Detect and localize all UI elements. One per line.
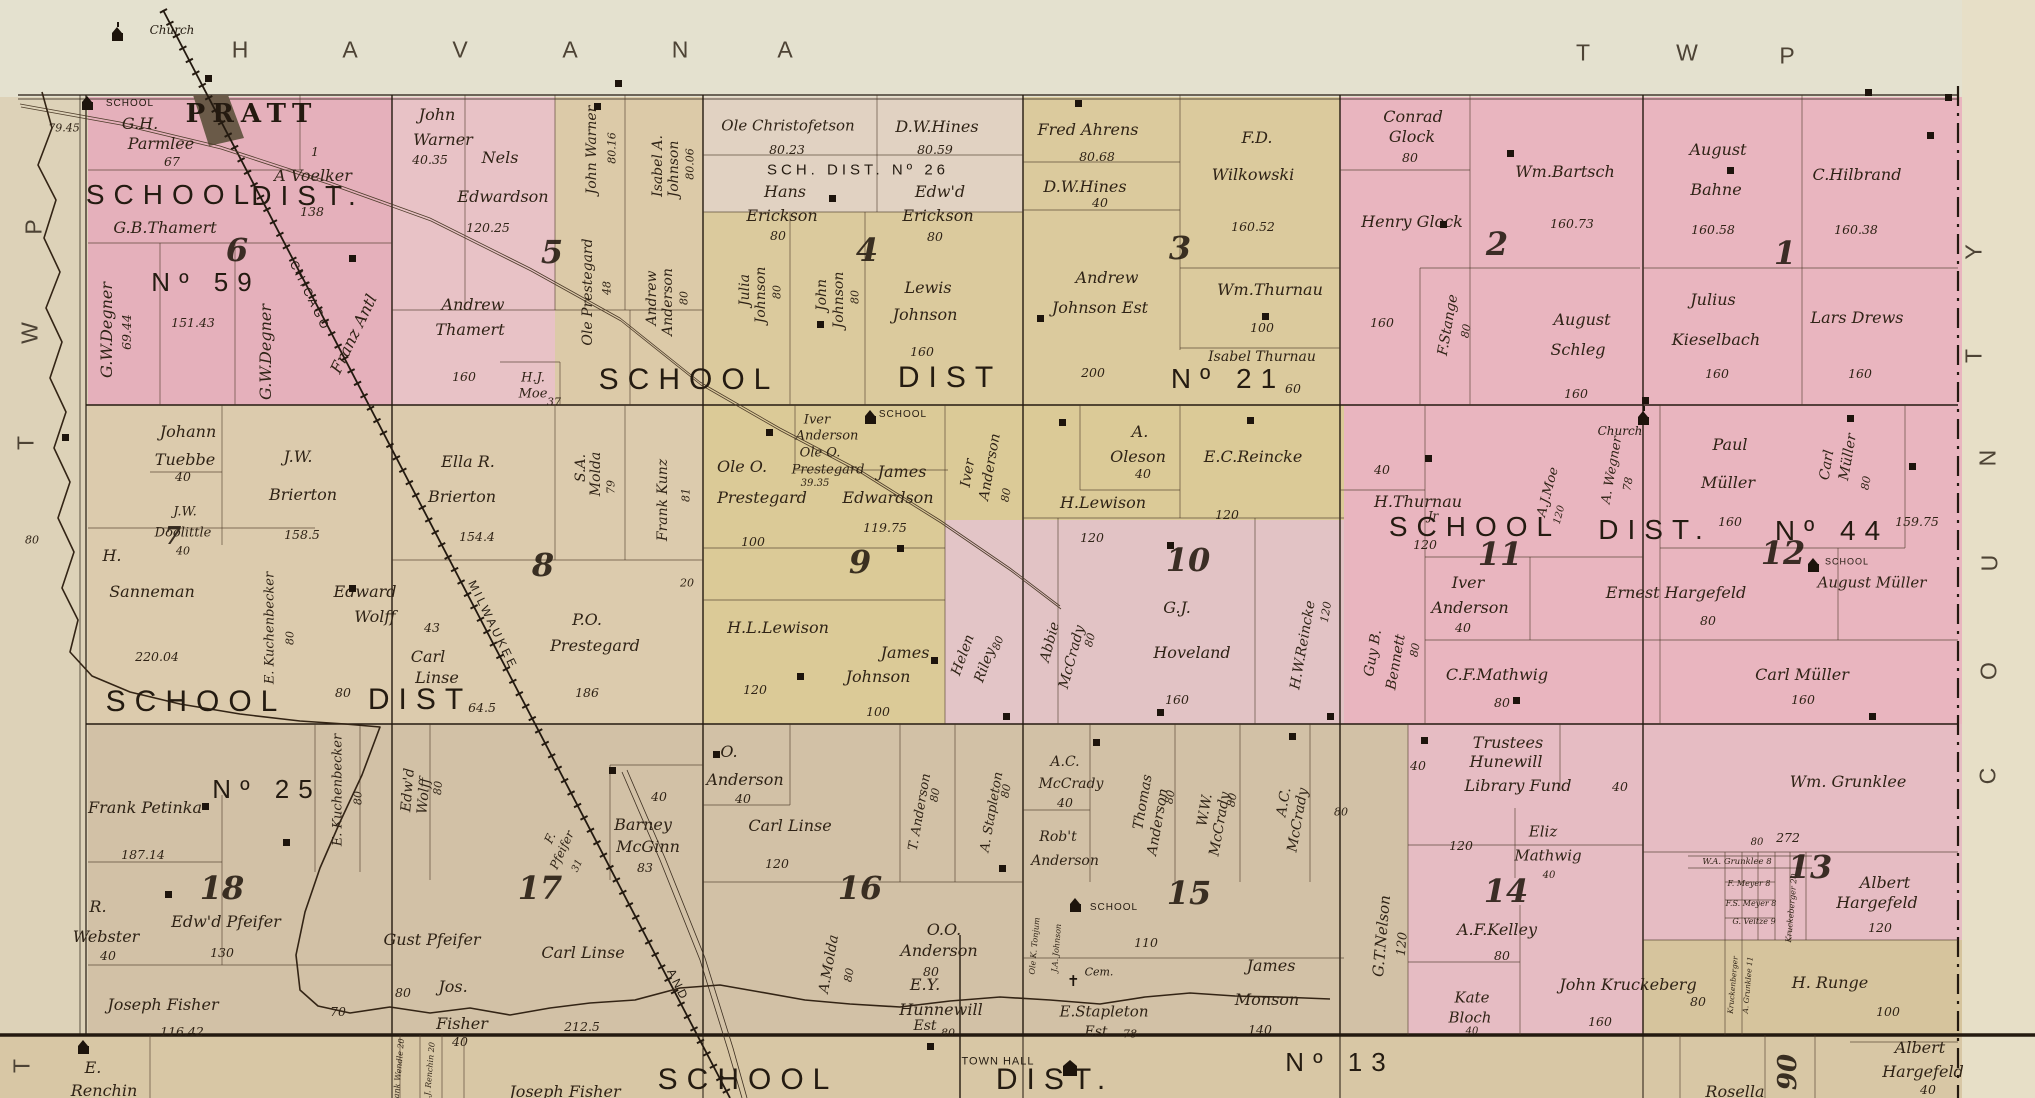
owner-label: Andrew [645,270,659,325]
owner-label: A. [1132,424,1149,440]
owner-label: E.Y. [910,977,940,993]
acreage-label: 160 [910,346,934,359]
acreage-label: 138 [300,206,324,219]
owner-label: Bloch [1449,1011,1492,1026]
owner-label: Johnson [832,272,846,329]
house-icon [1847,415,1854,422]
border-letter: T [11,1059,34,1073]
owner-label: Müller [1701,475,1755,491]
owner-label: Ole K. Tonjum [1029,917,1042,975]
section-number: 18 [200,872,245,904]
acreage-label: 80 [1402,152,1418,165]
acreage-label: 80 [1163,789,1176,805]
acreage-label: 80.06 [685,148,696,180]
owner-label: Moe [519,388,548,401]
owner-label: S.A. [574,454,588,482]
acreage-label: 151.43 [171,317,215,330]
acreage-label: 80 [1334,807,1348,818]
house-icon [349,585,356,592]
section-number: 2 [1486,228,1508,260]
owner-label: Hargefeld [1836,895,1918,911]
section-number: 16 [838,872,883,904]
district-label: Nº 25 [212,776,321,802]
plat-map: HAVANATWPPWTTYTNUOCPRATTChurchSCHOOLSCHO… [0,0,2035,1098]
owner-label: Wm. Grunklee [1790,774,1907,790]
school-icon [78,1040,89,1054]
school-icon [82,96,93,110]
acreage-label: 120 [1553,504,1568,525]
border-letter: O [1978,662,2001,680]
owner-label: Andrew [442,297,505,313]
house-icon [1727,167,1734,174]
owner-label: Rob't [1039,830,1076,844]
acreage-label: 160 [1718,516,1742,529]
acreage-label: 154.4 [459,531,495,544]
owner-label: Ella R. [441,454,495,470]
acreage-label: 80 [679,291,690,305]
acreage-label: 160 [1848,368,1872,381]
owner-label: Guy B. [1362,628,1384,677]
owner-label: McGinn [616,839,680,855]
acreage-label: 40 [651,791,667,804]
owner-label: Monson [1235,992,1299,1008]
acreage-label: 159.75 [1895,516,1939,529]
house-icon [1247,417,1254,424]
house-icon [62,434,69,441]
owner-label: Iver [804,414,830,427]
house-icon [1059,419,1066,426]
house-icon [1425,455,1432,462]
owner-label: Johann [160,424,217,440]
section-number: 3 [1169,232,1191,264]
owner-label: O. [720,744,737,760]
acreage-label: 40 [100,950,116,963]
owner-label: Hans [764,184,806,200]
owner-label: Nels [482,150,519,166]
owner-label: Ole O. [800,447,841,460]
acreage-label: 80 [927,231,943,244]
owner-label: Iver [959,458,978,488]
owner-label: E. Kuchenbecker [264,572,277,684]
owner-label: Johnson Est [1052,300,1148,316]
house-icon [615,80,622,87]
owner-label: Frank Kunz [656,459,670,541]
section-number: 15 [1167,877,1212,909]
border-letter: W [19,322,42,344]
acreage-label: 40 [1612,781,1628,794]
acreage-label: 37 [547,397,561,408]
owner-label: Library Fund [1465,778,1572,794]
owner-label: James [1247,958,1296,974]
acreage-label: 120 [1395,932,1410,957]
owner-label: E.C.Reincke [1204,449,1303,465]
acreage-label: 80 [999,783,1012,799]
owner-label: Joseph Fisher [107,997,218,1013]
acreage-label: 200 [1081,367,1105,380]
owner-label: Kruckenberger [1727,956,1739,1014]
acreage-label: 78 [1621,476,1634,492]
owner-label: Bennett [1384,633,1408,691]
owner-label: D.W.Hines [895,119,978,135]
owner-label: Anderson [1031,854,1099,868]
house-icon [1507,150,1514,157]
owner-label: Andrew [1076,270,1139,286]
owner-label: Doolittle [155,527,212,540]
owner-label: Fred Ahrens [1037,122,1138,138]
owner-label: Julia [738,274,752,306]
acreage-label: 80 [432,781,444,796]
owner-label: A.C. [1050,755,1079,769]
owner-label: J.W. [284,449,313,465]
landmark-label: TOWN HALL [962,1057,1035,1068]
acreage-label: 160 [1791,694,1815,707]
owner-label: Ole Prestegard [581,238,595,345]
owner-label: Gust Pfeifer [383,932,480,948]
acreage-label: 81 [681,488,692,502]
acreage-label: 40 [1057,797,1073,810]
owner-label: O.O. [927,922,962,938]
house-icon [1262,313,1269,320]
owner-label: Iver [1452,575,1484,591]
house-icon [609,767,616,774]
owner-label: John [815,279,829,311]
acreage-label: 120 [765,858,789,871]
acreage-label: 80.23 [769,144,805,157]
border-letter: P [23,219,46,234]
acreage-label: 31 [571,858,585,874]
owner-label: Jos. [438,979,467,995]
border-letter: Y [1963,244,1986,259]
acreage-label: 40 [1092,197,1108,210]
owner-label: Lars Drews [1811,310,1904,326]
owner-label: R. [89,899,106,915]
owner-label: Rosella [1705,1084,1764,1098]
acreage-label: 48 [602,281,613,295]
owner-label: H.Thurnau [1374,494,1462,510]
border-letter: T [1576,42,1590,65]
owner-label: H.J. [521,372,545,385]
house-icon [283,839,290,846]
landmark-label: Cem. [1085,967,1114,978]
house-icon [1167,542,1174,549]
owner-label: F. Meyer 8 [1727,880,1770,888]
acreage-label: 40.35 [412,154,448,167]
acreage-label: 158.5 [284,529,320,542]
acreage-label: 67 [164,156,180,169]
landmark-label: SCHOOL [879,410,927,420]
owner-label: Renchin [71,1083,138,1098]
acreage-label: 160 [1588,1016,1612,1029]
acreage-label: 120.25 [466,222,510,235]
owner-label: C.F.Mathwig [1446,667,1548,683]
section-number: 14 [1484,875,1529,907]
owner-label: Linse [415,670,459,686]
acreage-label: 160.73 [1550,218,1594,231]
owner-label: Wm.Thurnau [1217,282,1323,298]
owner-label: Molda [589,452,603,497]
acreage-label: 79 [606,480,617,494]
owner-label: H. [102,548,121,564]
acreage-label: 40 [1466,1027,1479,1037]
owner-label: Anderson [1431,600,1508,616]
acreage-label: 64.5 [468,702,496,715]
owner-label: Anderson [661,268,675,336]
section-number: 6 [226,234,248,266]
acreage-label: 80 [772,285,783,299]
owner-label: Johnson [667,141,681,198]
railroad-label: AND [665,967,691,1003]
house-icon [817,321,824,328]
border-letter: N [1977,450,2000,467]
border-letter: H [232,39,249,62]
section-number: 4 [856,234,878,266]
district-label: SCHOOL [86,181,258,209]
section-number: 1 [1774,237,1796,269]
house-icon [1927,132,1934,139]
owner-label: Prestegard [717,490,807,506]
border-letter: A [562,39,577,62]
house-icon [349,255,356,262]
owner-label: Est [1084,1025,1107,1039]
owner-label: Joseph Fisher [509,1084,620,1098]
landmark-label: Church [150,24,195,36]
owner-label: A. Grunklee 11 [1742,956,1754,1014]
townhall-icon [1063,1060,1077,1076]
owner-label: Anderson [900,943,977,959]
district-label: SCHOOL [658,1065,839,1095]
acreage-label: 100 [866,706,890,719]
owner-label: Tuebbe [155,452,215,468]
acreage-label: 80.59 [917,144,953,157]
acreage-label: 80 [335,687,351,700]
acreage-label: 40 [1374,464,1390,477]
house-icon [1421,737,1428,744]
owner-label: G.W.Degner [99,282,115,378]
acreage-label: 80 [1225,792,1238,808]
owner-label: Johnson [754,267,768,324]
house-icon [1003,713,1010,720]
owner-label: Ole Christofetson [721,119,854,134]
owner-label: Henry Glock [1361,214,1463,230]
acreage-label: 119.75 [863,522,907,535]
acreage-label: 40 [452,1036,468,1049]
acreage-label: 80 [1751,838,1764,848]
house-icon [1327,713,1334,720]
owner-label: Carl Linse [541,945,624,961]
acreage-label: 212.5 [564,1021,600,1034]
landmark-label: SCHOOL [106,99,154,109]
house-icon [797,673,804,680]
house-icon [713,751,720,758]
owner-label: Anderson [706,772,783,788]
district-label: SCH. DIST. Nº 26 [767,163,949,178]
acreage-label: 80 [1690,996,1706,1009]
owner-label: John [419,107,456,123]
house-icon [829,195,836,202]
section-number: 90 [1775,1054,1801,1090]
owner-label: A. Wegner [1600,435,1625,504]
owner-label: Hunnewill [899,1002,982,1018]
acreage-label: 186 [575,687,599,700]
owner-label: J.A. Johnson [1051,924,1063,973]
owner-label: P.O. [572,612,602,628]
acreage-label: 70 [330,1006,346,1019]
acreage-label: 160.38 [1834,224,1878,237]
acreage-label: 110 [1134,937,1158,950]
border-letter: U [1979,555,2002,572]
acreage-label: 160 [1564,388,1588,401]
owner-label: A Voelker [274,168,352,184]
owner-label: Carl [1817,449,1836,481]
acreage-label: 80.16 [607,132,618,164]
owner-label: Barney [614,817,672,833]
section-number: 8 [532,549,554,581]
owner-label: G.W.Degner [258,304,274,400]
acreage-label: 116.42 [160,1026,204,1039]
acreage-label: 100 [1876,1006,1900,1019]
house-icon [1513,697,1520,704]
border-letter: T [1963,349,1986,363]
house-icon [1440,221,1447,228]
acreage-label: 40 [1135,468,1151,481]
district-label: Nº 13 [1285,1049,1394,1075]
owner-label: H. Runge [1792,975,1869,991]
owner-label: Brierton [269,487,337,503]
house-icon [1289,733,1296,740]
owner-label: Carl Müller [1755,667,1849,683]
acreage-label: 78 [1123,1029,1137,1040]
house-icon [594,103,601,110]
acreage-label: 120 [1319,601,1333,624]
owner-label: Jr [1428,510,1439,522]
section-number: 17 [518,872,563,904]
school-icon [1070,898,1081,912]
acreage-label: 160 [1370,317,1394,330]
town-label: PRATT [186,101,319,127]
owner-label: August Müller [1818,576,1927,591]
owner-label: Parmlee [128,136,194,152]
acreage-label: 80 [1700,615,1716,628]
owner-label: F. [542,831,557,845]
owner-label: Wolff [415,777,432,814]
acreage-label: 80 [941,1028,955,1039]
owner-label: J.W. [173,506,197,519]
acreage-label: 40 [1920,1084,1936,1097]
acreage-label: 80.68 [1079,151,1115,164]
owner-label: Edw'd Pfeifer [171,914,281,930]
owner-label: Edw'd [915,184,965,200]
house-icon [205,75,212,82]
owner-label: Trustees [1473,735,1543,751]
owner-label: Edward [333,584,396,600]
owner-label: F.S. Meyer 8 [1726,900,1777,908]
owner-label: August [1553,312,1610,328]
owner-label: Kieselbach [1672,332,1760,348]
acreage-label: 1 [311,146,319,159]
owner-label: Prestegard [792,464,865,477]
acreage-label: 69.44 [121,314,134,350]
owner-label: Prestegard [550,638,640,654]
owner-label: Est [913,1019,936,1033]
acreage-label: 120 [1868,922,1892,935]
owner-label: H.L.Lewison [727,620,829,636]
district-label: DIST. [996,1065,1114,1095]
district-label: Nº 59 [151,269,260,295]
acreage-label: 40 [1543,871,1556,881]
owner-label: James [878,464,927,480]
owner-label: Edwardson [457,189,548,205]
border-letter: W [1676,42,1698,65]
border-letter: T [15,436,38,450]
house-icon [1157,709,1164,716]
section-number: 11 [1478,538,1523,570]
owner-label: A.Molda [817,934,841,995]
acreage-label: 120 [1080,532,1104,545]
owner-label: Hoveland [1153,645,1230,661]
owner-label: Albert [1860,875,1910,891]
owner-label: Glock [1389,129,1435,145]
house-icon [1075,100,1082,107]
house-icon [1909,463,1916,470]
owner-label: T. Anderson [907,773,933,852]
house-icon [202,803,209,810]
house-icon [1037,315,1044,322]
owner-label: Johnson [893,307,958,323]
owner-label: Isabel A. [651,135,665,197]
district-label: DIST [898,363,1002,393]
owner-label: Sanneman [109,584,195,600]
railroad-label: CHICAGO [288,259,333,333]
owner-label: G.J. [1163,600,1191,616]
border-letter: P [1779,45,1794,68]
owner-label: Hargefeld [1882,1064,1964,1080]
owner-label: Frank Wendle 20 [392,1038,406,1098]
house-icon [165,891,172,898]
owner-label: McCrady [1039,777,1104,791]
owner-label: Helen [949,633,977,678]
owner-label: August [1689,142,1746,158]
border-letter: A [777,39,792,62]
acreage-label: 100 [741,536,765,549]
acreage-label: 160.58 [1691,224,1735,237]
acreage-label: 40 [1410,760,1426,773]
acreage-label: 83 [637,862,653,875]
owner-label: C.Hilbrand [1813,167,1902,183]
border-letter: N [672,39,689,62]
owner-label: G.B.Thamert [113,220,216,236]
acreage-label: 40 [735,793,751,806]
acreage-label: 20 [680,578,694,589]
owner-label: Kate [1454,991,1489,1006]
owner-label: Anderson [796,430,859,443]
acreage-label: 120 [1449,840,1473,853]
acreage-label: 80 [1459,323,1472,339]
acreage-label: 140 [1248,1024,1272,1037]
owner-label: F.D. [1241,130,1272,146]
acreage-label: 80 [25,535,39,546]
owner-label: Paul [1712,437,1747,453]
acreage-label: 39.35 [801,479,830,489]
cross-icon: ✝ [1067,972,1080,990]
house-icon [766,429,773,436]
district-label: DIST. [1598,516,1711,544]
owner-label: Erickson [902,208,973,224]
school-icon [865,410,876,424]
house-icon [1869,713,1876,720]
owner-label: Thamert [435,322,504,338]
owner-label: H.W.Reincke [1288,599,1317,690]
owner-label: Lewis [904,280,951,296]
